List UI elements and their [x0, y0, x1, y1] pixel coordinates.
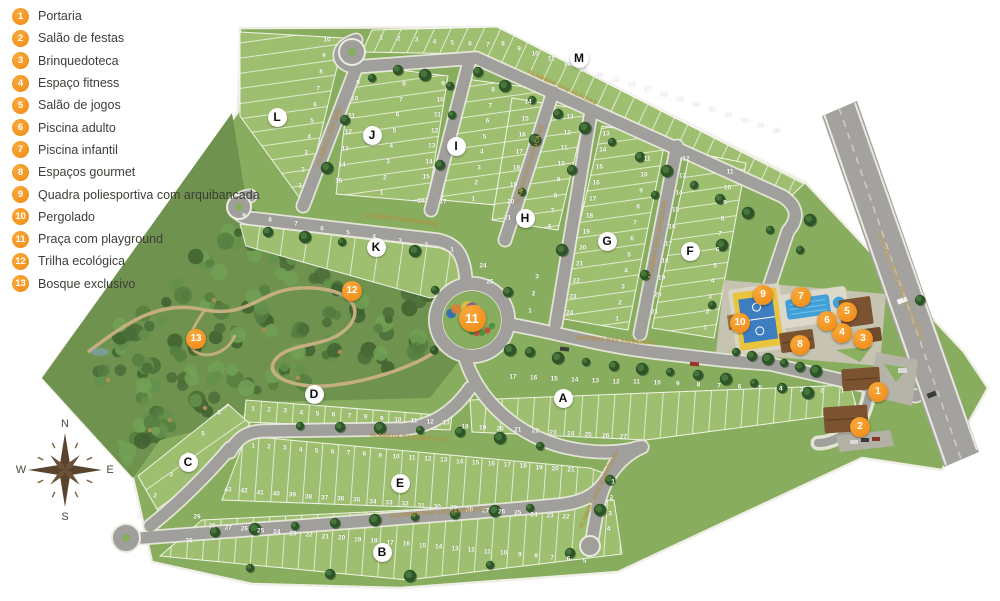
legend: 1Portaria2Salão de festas3Brinquedoteca4… — [12, 5, 260, 295]
legend-number-badge: 3 — [12, 52, 29, 69]
legend-label: Praça com playground — [38, 232, 163, 246]
legend-number-badge: 4 — [12, 75, 29, 92]
legend-item: 10Pergolado — [12, 206, 260, 228]
compass-rose — [28, 433, 102, 507]
compass-label-w: W — [16, 464, 26, 476]
legend-item: 11Praça com playground — [12, 228, 260, 250]
legend-item: 8Espaços gourmet — [12, 161, 260, 183]
legend-label: Portaria — [38, 9, 82, 23]
legend-item: 12Trilha ecológica — [12, 250, 260, 272]
legend-number-badge: 6 — [12, 119, 29, 136]
legend-item: 7Piscina infantil — [12, 139, 260, 161]
compass-label-e: E — [106, 464, 113, 476]
legend-item: 6Piscina adulto — [12, 116, 260, 138]
legend-number-badge: 8 — [12, 164, 29, 181]
legend-label: Piscina adulto — [38, 121, 116, 135]
legend-item: 4Espaço fitness — [12, 72, 260, 94]
legend-number-badge: 9 — [12, 186, 29, 203]
legend-item: 9Quadra poliesportiva com arquibancada — [12, 183, 260, 205]
legend-item: 1Portaria — [12, 5, 260, 27]
legend-label: Bosque exclusivo — [38, 277, 135, 291]
legend-label: Salão de jogos — [38, 98, 121, 112]
club-area — [716, 280, 886, 366]
legend-label: Trilha ecológica — [38, 254, 125, 268]
compass-label-s: S — [61, 511, 68, 523]
legend-label: Espaço fitness — [38, 76, 119, 90]
legend-item: 2Salão de festas — [12, 27, 260, 49]
legend-number-badge: 13 — [12, 275, 29, 292]
legend-item: 5Salão de jogos — [12, 94, 260, 116]
compass-label-n: N — [61, 418, 69, 430]
pergola — [727, 313, 747, 330]
legend-label: Quadra poliesportiva com arquibancada — [38, 188, 260, 202]
legend-number-badge: 11 — [12, 231, 29, 248]
legend-number-badge: 12 — [12, 253, 29, 270]
legend-number-badge: 1 — [12, 8, 29, 25]
legend-item: 3Brinquedoteca — [12, 50, 260, 72]
legend-item: 13Bosque exclusivo — [12, 273, 260, 295]
site-plan-page: 1Portaria2Salão de festas3Brinquedoteca4… — [0, 0, 1000, 601]
legend-number-badge: 5 — [12, 97, 29, 114]
legend-number-badge: 2 — [12, 30, 29, 47]
legend-label: Espaços gourmet — [38, 165, 135, 179]
legend-number-badge: 10 — [12, 208, 29, 225]
legend-label: Brinquedoteca — [38, 54, 119, 68]
legend-label: Pergolado — [38, 210, 95, 224]
legend-label: Salão de festas — [38, 31, 124, 45]
legend-number-badge: 7 — [12, 141, 29, 158]
legend-label: Piscina infantil — [38, 143, 118, 157]
